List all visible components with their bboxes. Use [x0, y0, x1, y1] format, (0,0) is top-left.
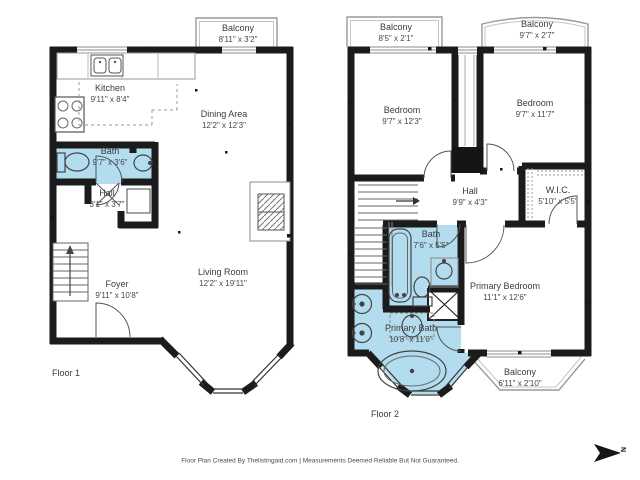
fireplace-icon: [250, 182, 290, 241]
floor1-stairs: [53, 243, 88, 301]
north-arrow-icon: [594, 444, 621, 462]
room-label-primary-bath: Primary Bath 10'8" x 11'0": [385, 323, 437, 345]
room-label-balcony-f1: Balcony 8'11" x 3'2": [219, 23, 258, 45]
room-label-bath-f1: Bath 9'7" x 3'6": [93, 146, 128, 168]
floor1-label: Floor 1: [52, 368, 80, 378]
room-label-hall-f1: Hall 3'1" x 3'7": [90, 188, 125, 210]
room-label-hall-f2: Hall 9'9" x 4'3": [453, 186, 488, 208]
kitchen-sink-icon: [91, 55, 123, 76]
room-label-living-room: Living Room 12'2" x 19'11": [198, 267, 248, 289]
floor1-plan: [50, 18, 293, 393]
room-label-balcony-f2-left: Balcony 8'5" x 2'1": [379, 22, 414, 44]
room-label-foyer: Foyer 9'11" x 10'8": [95, 279, 138, 301]
room-label-bath-f2: Bath 7'6" x 5'5": [414, 229, 449, 251]
floor-plan-drawing: [0, 0, 640, 480]
stove-icon: [55, 97, 84, 132]
kitchen-counter: [57, 53, 195, 79]
compass-north-label: N: [619, 447, 626, 452]
room-label-bedroom-right: Bedroom 9'7" x 11'7": [516, 98, 555, 120]
floor2-label: Floor 2: [371, 409, 399, 419]
shaft: [452, 147, 484, 173]
room-label-balcony-f2-right: Balcony 9'7" x 2'7": [520, 19, 555, 41]
room-label-primary-bedroom: Primary Bedroom 11'1" x 12'6": [470, 281, 540, 303]
hall-closet: [127, 189, 150, 213]
room-label-kitchen: Kitchen 9'11" x 8'4": [91, 83, 130, 105]
shaft-channel-lines: [465, 53, 474, 146]
floor-plan-page: Balcony 8'11" x 3'2" Kitchen 9'11" x 8'4…: [0, 0, 640, 480]
room-label-dining-area: Dining Area 12'2" x 12'3": [201, 109, 248, 131]
footer-text: Floor Plan Created By Thelistingaid.com …: [181, 458, 459, 465]
stairs-direction-arrow: [413, 197, 420, 205]
room-label-wic: W.I.C. 5'10" x 5'5": [538, 185, 577, 207]
room-label-bedroom-left: Bedroom 9'7" x 12'3": [382, 105, 421, 127]
room-label-balcony-f2-bottom: Balcony 6'11" x 2'10": [498, 367, 541, 389]
shower-icon: [428, 289, 461, 320]
